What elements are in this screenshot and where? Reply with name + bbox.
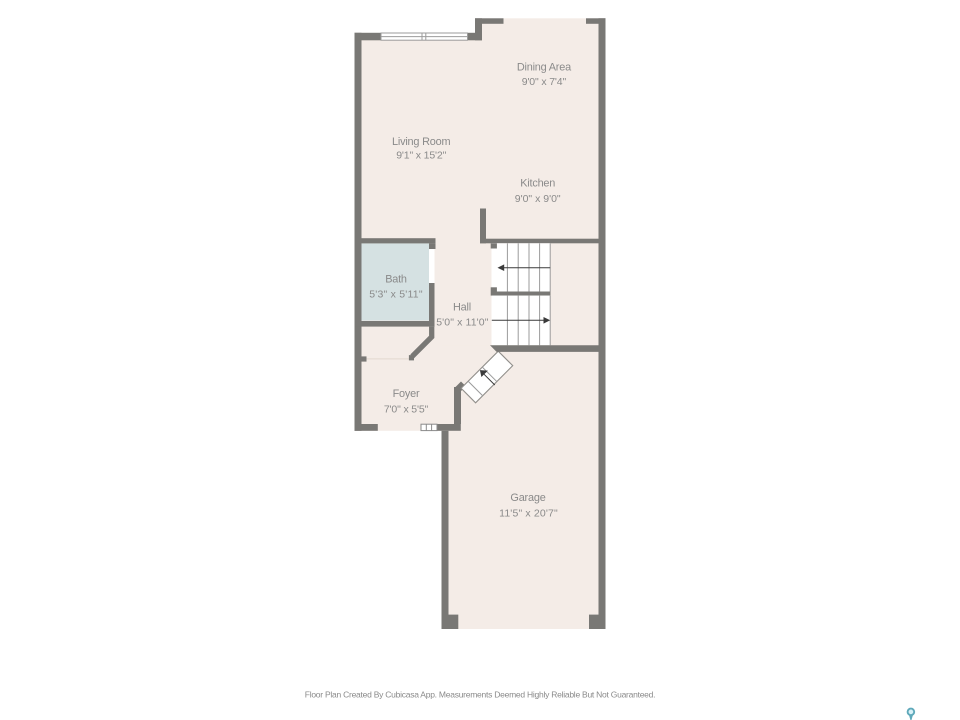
- svg-text:9'0" x 7'4": 9'0" x 7'4": [522, 76, 567, 88]
- svg-text:Foyer: Foyer: [393, 388, 420, 400]
- svg-text:Garage: Garage: [510, 492, 545, 504]
- svg-text:Living Room: Living Room: [392, 136, 450, 148]
- svg-text:Bath: Bath: [385, 273, 407, 285]
- svg-text:Dining Area: Dining Area: [517, 62, 572, 74]
- svg-text:Floor Plan Created By Cubicasa: Floor Plan Created By Cubicasa App. Meas…: [305, 690, 656, 700]
- svg-text:5'3" x 5'11": 5'3" x 5'11": [369, 289, 423, 301]
- svg-text:9'0" x 9'0": 9'0" x 9'0": [515, 193, 561, 205]
- svg-text:5'0" x 11'0": 5'0" x 11'0": [436, 317, 489, 329]
- svg-text:Kitchen: Kitchen: [520, 177, 555, 189]
- svg-text:9'1" x 15'2": 9'1" x 15'2": [396, 150, 446, 162]
- svg-text:7'0" x 5'5": 7'0" x 5'5": [384, 404, 429, 416]
- svg-text:11'5" x 20'7": 11'5" x 20'7": [499, 508, 558, 520]
- svg-text:Hall: Hall: [453, 301, 471, 313]
